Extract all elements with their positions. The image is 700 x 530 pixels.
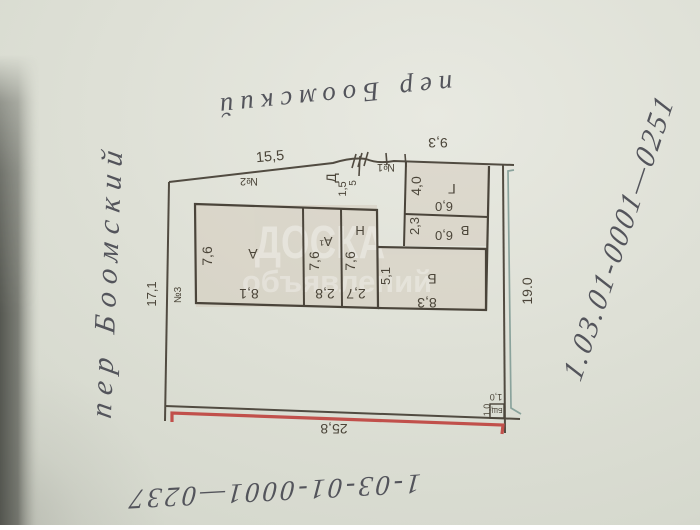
- svg-text:5: 5: [348, 180, 359, 186]
- svg-text:А¹: А¹: [319, 234, 333, 249]
- svg-text:7,6: 7,6: [342, 251, 358, 271]
- svg-text:А: А: [248, 246, 258, 262]
- svg-text:7,6: 7,6: [199, 246, 215, 266]
- svg-text:5,1: 5,1: [378, 267, 393, 285]
- svg-text:8,1: 8,1: [239, 286, 259, 302]
- svg-text:17,1: 17,1: [144, 281, 159, 306]
- svg-text:В: В: [461, 223, 470, 238]
- svg-text:Б: Б: [427, 271, 436, 287]
- svg-text:№3: №3: [173, 286, 184, 303]
- svg-text:9,3: 9,3: [428, 135, 448, 151]
- svg-text:15,5: 15,5: [255, 148, 285, 166]
- svg-text:4,0: 4,0: [408, 176, 424, 196]
- svg-text:6,0: 6,0: [435, 199, 453, 214]
- svg-text:Г: Г: [448, 181, 456, 197]
- svg-text:6,0: 6,0: [435, 228, 453, 243]
- svg-text:1,0: 1,0: [482, 404, 492, 417]
- svg-text:2,3: 2,3: [407, 217, 422, 235]
- svg-text:2,8: 2,8: [315, 286, 335, 302]
- svg-text:БЩ: БЩ: [491, 406, 503, 413]
- svg-text:8,3: 8,3: [417, 295, 437, 311]
- svg-text:№2: №2: [240, 175, 258, 187]
- svg-text:19.0: 19.0: [519, 277, 535, 304]
- svg-text:Д: Д: [323, 173, 339, 183]
- svg-text:25,8: 25,8: [320, 421, 347, 437]
- svg-text:2,7: 2,7: [346, 286, 366, 302]
- svg-text:№1: №1: [377, 161, 395, 173]
- svg-text:1,0: 1,0: [490, 392, 503, 402]
- svg-text:объявлений: объявлений: [242, 264, 432, 299]
- svg-text:Н: Н: [355, 223, 364, 238]
- svg-text:7,6: 7,6: [306, 251, 322, 271]
